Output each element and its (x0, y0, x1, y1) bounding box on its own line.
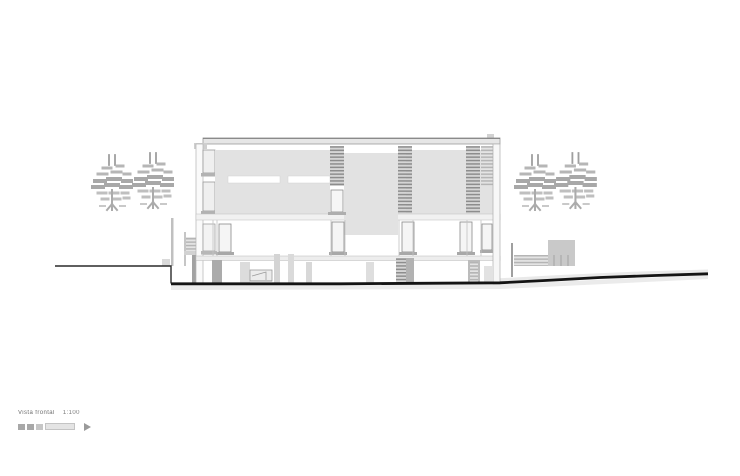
architectural-elevation-drawing: Vista frontal 1:100 (0, 0, 740, 476)
roof-parapet (194, 134, 500, 149)
right-annex-structure (511, 240, 575, 277)
parked-car-sketch (250, 270, 272, 281)
floor-slab-band (196, 256, 500, 261)
window-sill (328, 212, 346, 215)
drawing-title: Vista frontal 1:100 (18, 410, 91, 417)
tree-group-right (516, 153, 595, 210)
tall-facade-panel (344, 153, 398, 235)
drawing-title-text: Vista frontal (18, 410, 55, 416)
scale-bar-segment (45, 423, 75, 430)
building-elevation (194, 134, 500, 284)
pier-window (331, 190, 343, 212)
tree-group-left (93, 153, 172, 210)
scale-bar-segment (18, 424, 25, 430)
scale-bar (18, 423, 91, 430)
title-block: Vista frontal 1:100 (18, 410, 91, 430)
elevation-svg (0, 0, 740, 476)
scale-bar-segment (36, 424, 43, 430)
right-edge-pier (493, 144, 500, 284)
second-floor-sills (216, 250, 494, 255)
scale-label: 1:100 (63, 410, 80, 416)
scale-bar-segment (27, 424, 34, 430)
north-arrow-icon (84, 423, 91, 431)
